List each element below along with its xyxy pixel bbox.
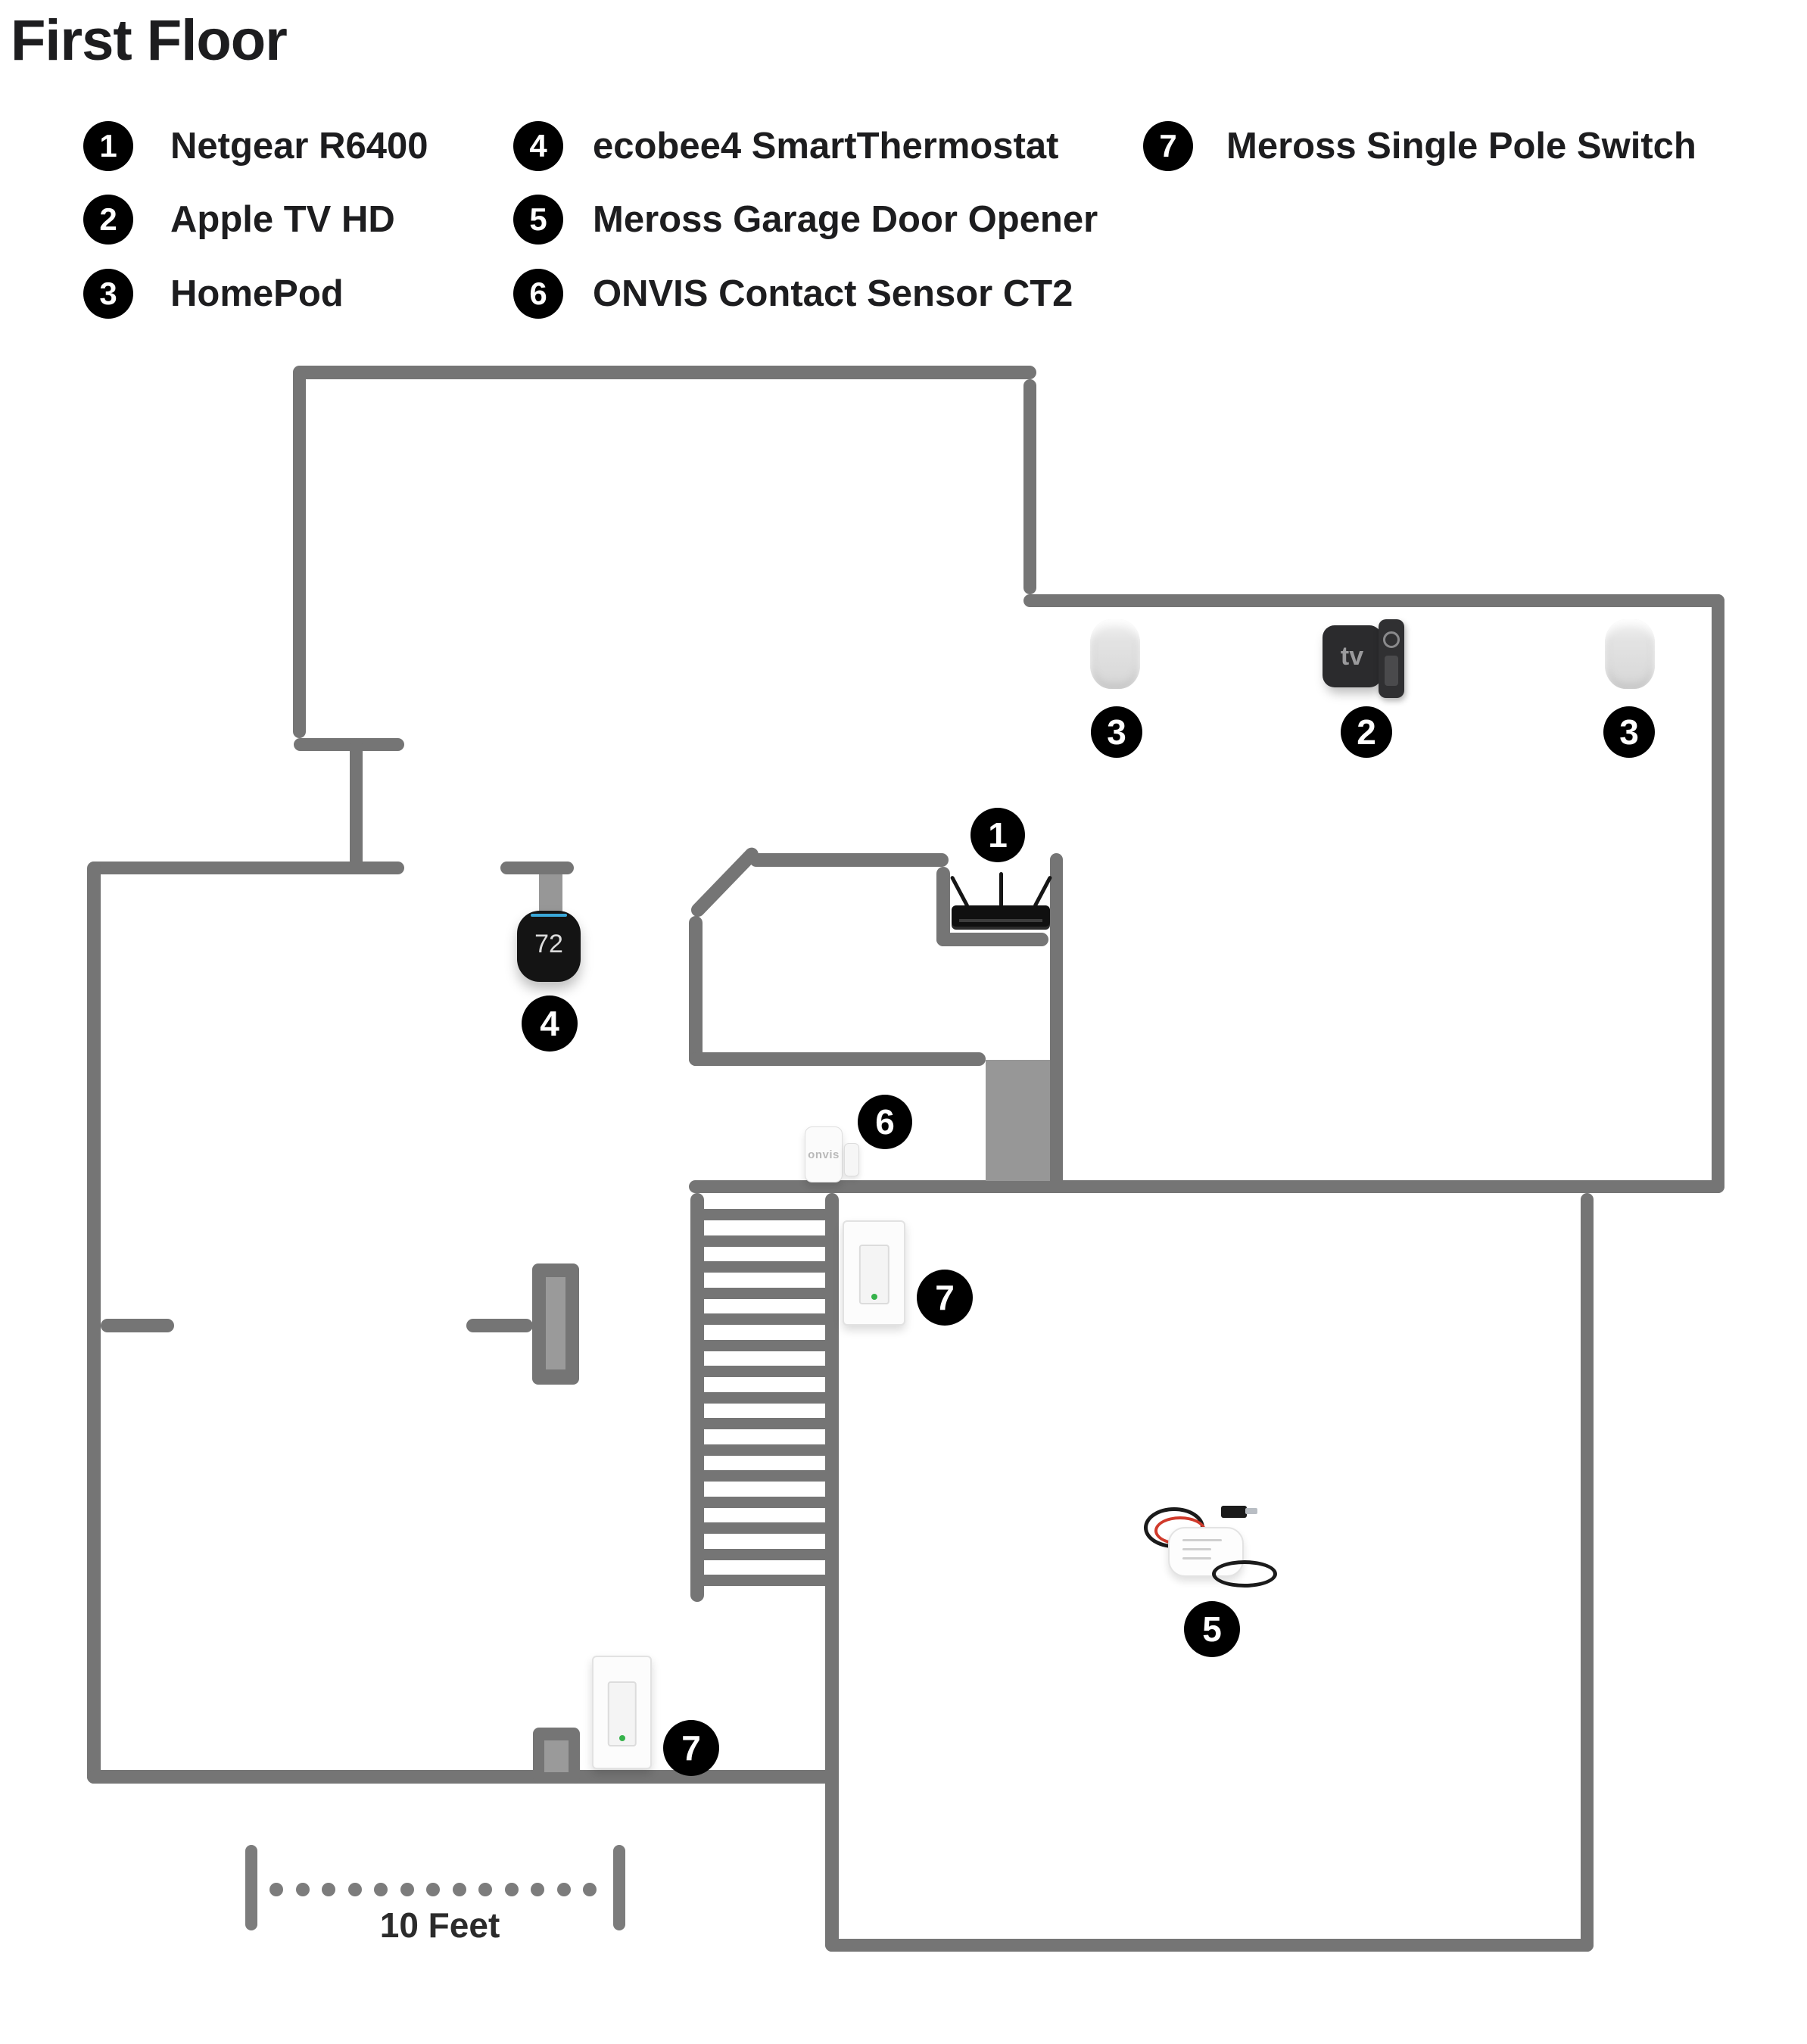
stair-tread-1 [704,1209,825,1220]
homepod-right-icon [1605,619,1655,689]
switch-upper-icon [843,1220,905,1326]
apple-tv-icon: tv [1323,625,1382,687]
legend-label-3: HomePod [170,273,344,315]
wall-bottom-left-wall [87,1770,833,1784]
wall-stair-room-top [749,853,949,867]
wall-interior-stub [466,1319,533,1332]
legend-label-4: ecobee4 SmartThermostat [593,125,1058,167]
garage-door-opener-label-line-2 [1182,1548,1211,1550]
switch-upper-led [871,1294,877,1300]
scale-dot-6 [400,1883,414,1896]
legend-label-7: Meross Single Pole Switch [1226,125,1696,167]
homepod-left-icon [1090,619,1140,689]
legend-label-5: Meross Garage Door Opener [593,198,1098,241]
plan-badge-2-1: 2 [1341,706,1392,758]
plan-badge-7-8: 7 [663,1720,719,1776]
plan-badge-7-7: 7 [917,1270,973,1326]
legend-label-6: ONVIS Contact Sensor CT2 [593,273,1073,315]
stair-tread-11 [704,1470,825,1482]
wall-stairs-left-wall [690,1193,704,1602]
wall-stair-room-left [689,916,703,1066]
scale-dot-4 [348,1883,362,1896]
wall-top-wall [294,366,1036,379]
legend-badge-2: 2 [83,195,133,245]
stair-tread-8 [704,1392,825,1404]
netgear-router-icon [952,905,1050,927]
scale-dot-5 [374,1883,388,1896]
wall-left-door-stub [101,1319,174,1332]
wall-right-house-wall [1712,594,1724,1193]
door-thermostat-door [539,874,562,914]
stair-tread-9 [704,1418,825,1429]
stair-tread-15 [704,1575,825,1586]
plan-badge-6-6: 6 [858,1095,912,1149]
legend-label-2: Apple TV HD [170,198,395,241]
wall-stair-room-bottom [689,1052,986,1066]
garage-door-opener-usb-icon [1221,1506,1247,1518]
scale-dot-12 [557,1883,571,1896]
wall-garage-bottom-wall [825,1939,1594,1952]
stair-tread-3 [704,1261,825,1273]
wall-jog-connector [350,738,363,874]
stair-tread-6 [704,1340,825,1351]
scale-dot-1 [269,1883,283,1896]
door-bottom-door-panel [544,1740,569,1772]
scale-dot-3 [322,1883,335,1896]
switch-lower-led [619,1735,625,1741]
plan-badge-3-2: 3 [1091,706,1142,758]
apple-tv-remote-icon [1379,619,1404,698]
scale-dot-7 [426,1883,440,1896]
scale-dot-10 [505,1883,519,1896]
plan-badge-1-0: 1 [970,808,1025,862]
stair-tread-4 [704,1288,825,1299]
scale-dot-11 [531,1883,544,1896]
wall-nook-bottom-wall [936,933,1048,946]
wall-west-wing-wall [88,862,404,874]
wall-left-house-wall [87,862,101,1784]
door-hall-door-opening [986,1060,1050,1181]
scale-right-end [613,1845,625,1930]
stair-tread-12 [704,1497,825,1508]
wall-east-top-wall [1023,594,1724,607]
plan-badge-3-3: 3 [1603,706,1655,758]
scale-dot-13 [583,1883,597,1896]
legend-badge-7: 7 [1143,121,1193,171]
legend-badge-4: 4 [513,121,563,171]
stair-tread-13 [704,1522,825,1534]
scale-dot-9 [478,1883,492,1896]
legend-label-1: Netgear R6400 [170,125,428,167]
wall-garage-right-wall [1581,1193,1594,1952]
wall-corridor-wall [689,1180,1724,1193]
wall-east-connector-wall [1023,379,1036,594]
legend-badge-5: 5 [513,195,563,245]
stair-tread-10 [704,1444,825,1456]
wall-center-right-wall [1050,853,1063,1193]
wall-garage-left-wall [825,1193,839,1952]
page-title: First Floor [11,8,287,73]
stair-tread-5 [704,1313,825,1325]
netgear-router-antenna-1-icon [950,875,970,908]
plan-badge-5-5: 5 [1184,1601,1240,1657]
ecobee-thermostat-icon: 72 [517,911,581,982]
onvis-sensor-magnet-icon [844,1143,859,1176]
onvis-sensor-icon: onvis [805,1126,843,1182]
ecobee-thermostat-display: 72 [527,921,570,967]
plan-badge-4-4: 4 [522,996,578,1052]
scale-left-end [245,1845,257,1930]
wall-stair-room-diagonal [688,845,761,920]
garage-door-opener-label-line-1 [1182,1539,1222,1541]
wall-upper-stub [294,738,404,751]
stair-tread-14 [704,1549,825,1560]
wall-upper-left-wall [293,366,306,738]
legend-badge-3: 3 [83,269,133,319]
scale-dot-8 [453,1883,466,1896]
garage-door-opener-label-line-3 [1182,1557,1211,1559]
stair-tread-2 [704,1235,825,1247]
wall-thermostat-stub [500,862,574,874]
legend-badge-1: 1 [83,121,133,171]
legend-badge-6: 6 [513,269,563,319]
door-interior-door-panel [546,1277,565,1369]
scale-label: 10 Feet [380,1905,500,1946]
stair-tread-7 [704,1366,825,1377]
switch-lower-icon [592,1656,652,1769]
scale-dot-2 [296,1883,310,1896]
netgear-router-antenna-2-icon [999,872,1003,907]
garage-door-opener-wire-tail-icon [1212,1560,1277,1588]
